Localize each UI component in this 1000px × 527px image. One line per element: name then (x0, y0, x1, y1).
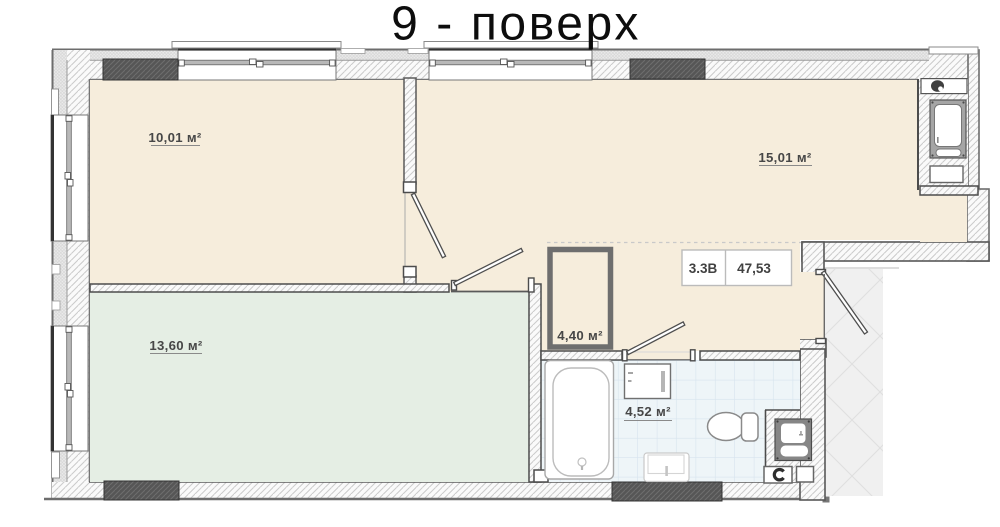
svg-text:4,40 м²: 4,40 м² (557, 328, 603, 343)
svg-text:15,01 м²: 15,01 м² (758, 150, 812, 165)
svg-text:10,01 м²: 10,01 м² (148, 130, 202, 145)
svg-text:47,53: 47,53 (737, 261, 771, 276)
svg-text:13,60 м²: 13,60 м² (149, 338, 203, 353)
svg-text:3.3В: 3.3В (689, 261, 718, 276)
svg-text:4,52 м²: 4,52 м² (625, 404, 671, 419)
svg-text:9 - поверх: 9 - поверх (391, 0, 641, 51)
